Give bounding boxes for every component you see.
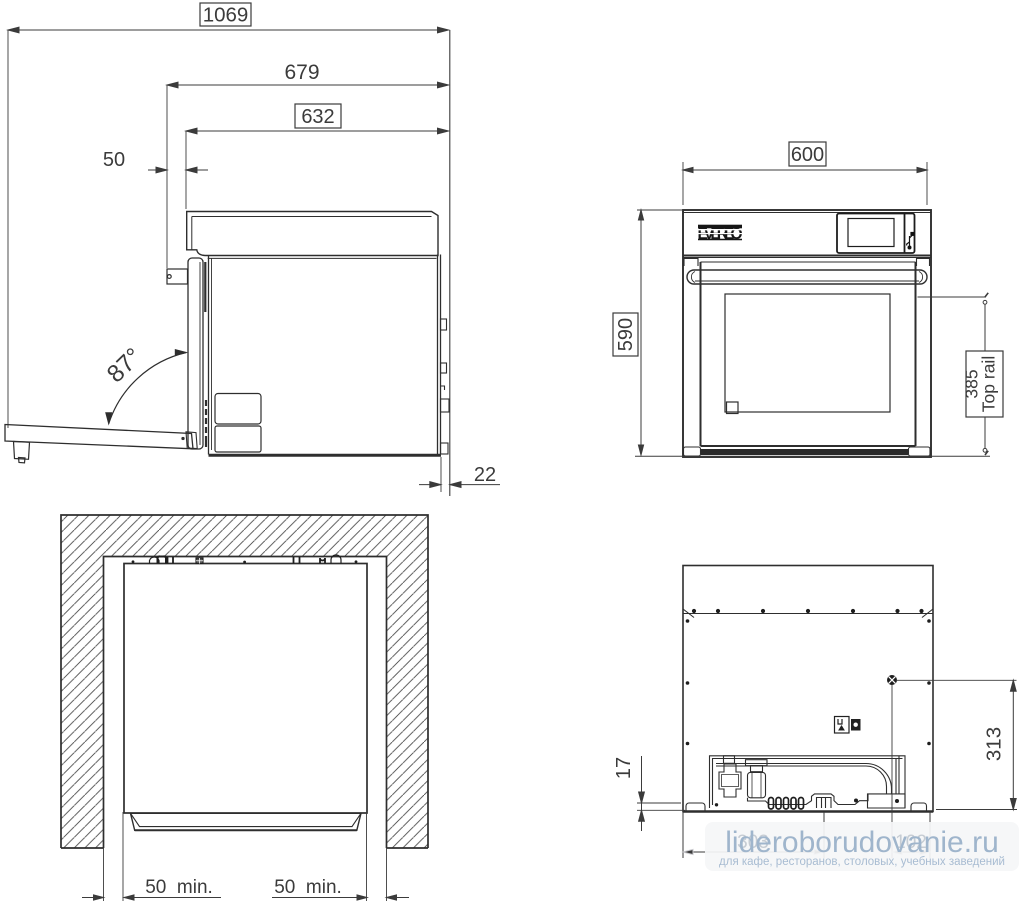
svg-text:600: 600 bbox=[791, 144, 824, 166]
svg-text:50 min.: 50 min. bbox=[274, 877, 342, 898]
svg-text:679: 679 bbox=[284, 61, 319, 84]
svg-text:313: 313 bbox=[983, 727, 1006, 761]
svg-text:EVEREO: EVEREO bbox=[698, 226, 743, 243]
svg-text:Top rail: Top rail bbox=[979, 356, 999, 412]
svg-text:для кафе, ресторанов, столовых: для кафе, ресторанов, столовых, учебных … bbox=[719, 856, 1005, 868]
svg-text:17: 17 bbox=[613, 757, 635, 779]
svg-text:1069: 1069 bbox=[203, 4, 249, 27]
svg-text:632: 632 bbox=[301, 106, 334, 128]
svg-text:87°: 87° bbox=[102, 343, 147, 388]
svg-text:50 min.: 50 min. bbox=[145, 877, 213, 898]
svg-text:50: 50 bbox=[103, 149, 125, 171]
svg-text:22: 22 bbox=[474, 464, 496, 486]
svg-text:lideroborudovanie.ru: lideroborudovanie.ru bbox=[725, 826, 999, 859]
svg-text:590: 590 bbox=[615, 318, 637, 351]
